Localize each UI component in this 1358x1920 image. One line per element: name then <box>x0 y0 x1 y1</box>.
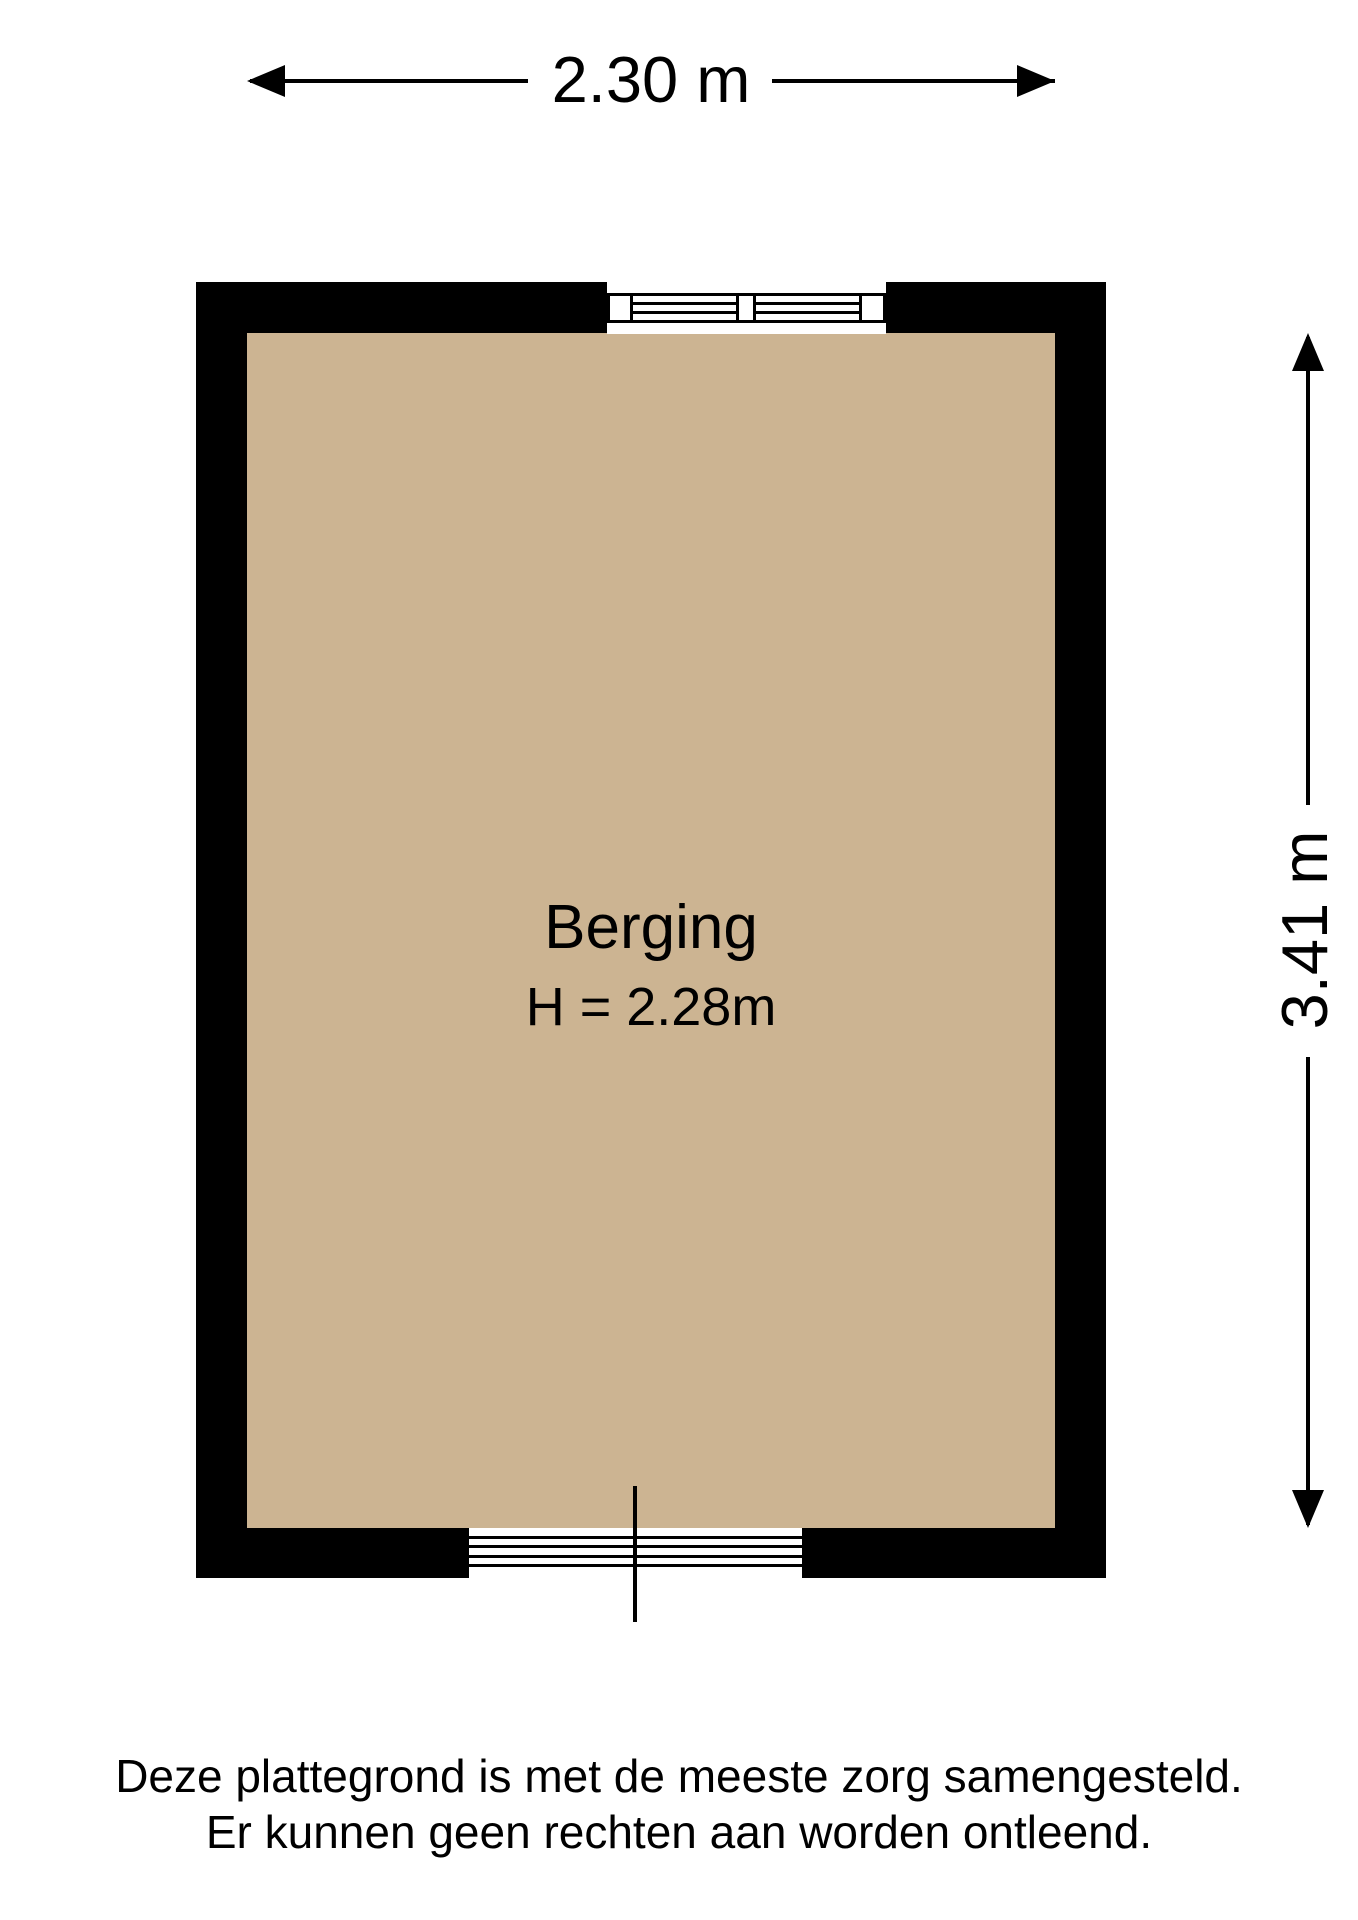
window-frame-icon <box>607 282 886 334</box>
window-symbol <box>607 282 886 334</box>
width-dimension-line-right <box>772 79 1055 83</box>
depth-arrow-down-icon <box>1292 1490 1324 1528</box>
disclaimer-line-2: Er kunnen geen rechten aan worden ontlee… <box>0 1804 1358 1860</box>
disclaimer-line-1: Deze plattegrond is met de meeste zorg s… <box>0 1748 1358 1804</box>
door-swing-line <box>633 1486 637 1622</box>
depth-dimension-line-top <box>1306 337 1310 805</box>
depth-dimension-label: 3.41 m <box>1272 800 1338 1060</box>
floorplan-canvas: 2.30 m Berging H = 2.28m <box>0 0 1358 1920</box>
disclaimer-text: Deze plattegrond is met de meeste zorg s… <box>0 1748 1358 1860</box>
room-ceiling-height-label: H = 2.28m <box>247 976 1055 1038</box>
room-name-label: Berging <box>247 892 1055 964</box>
depth-dimension-line-bottom <box>1306 1057 1310 1525</box>
room-label-group: Berging H = 2.28m <box>247 892 1055 1038</box>
width-arrow-right-icon <box>1017 65 1055 97</box>
